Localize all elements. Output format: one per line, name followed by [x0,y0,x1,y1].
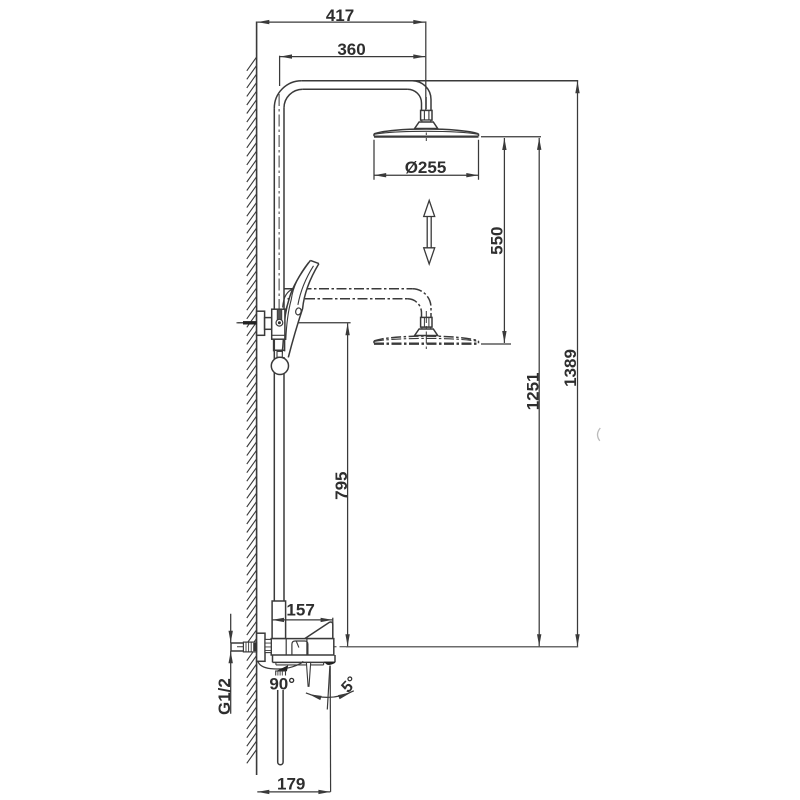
svg-text:179: 179 [277,775,305,794]
svg-text:1251: 1251 [523,372,542,410]
svg-text:90°: 90° [269,675,295,694]
svg-text:795: 795 [332,472,351,500]
svg-text:G1/2: G1/2 [215,678,234,715]
svg-text:417: 417 [326,6,354,25]
svg-text:Ø255: Ø255 [405,158,447,177]
svg-text:550: 550 [487,227,506,255]
svg-text:1389: 1389 [561,349,580,387]
svg-text:360: 360 [337,40,365,59]
svg-text:157: 157 [286,601,314,620]
